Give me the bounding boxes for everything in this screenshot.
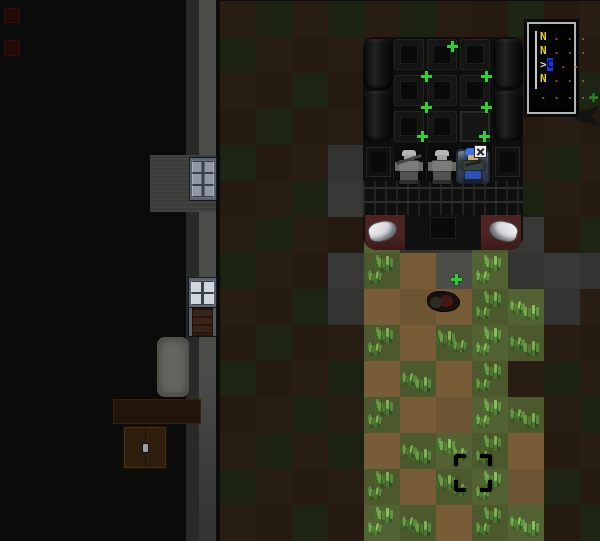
sprite-base — [464, 179, 482, 183]
minimap-dots: . . . — [553, 44, 586, 57]
minimap-row: N . . . — [540, 72, 572, 86]
sprite-legs — [433, 172, 451, 180]
reticle-corner — [480, 480, 492, 492]
cargo-plus-icon — [481, 102, 492, 113]
plus-bar — [479, 135, 490, 138]
sprite-armL — [428, 162, 432, 171]
minimap-row: N . . . — [540, 44, 572, 58]
cargo-plus-icon — [479, 131, 490, 142]
plus-bar — [481, 106, 492, 109]
minimap-letter: N — [540, 44, 553, 57]
minimap-row: >C . . — [540, 58, 572, 72]
cargo-plus-icon — [421, 102, 432, 113]
game-viewport[interactable]: N . . .N . . .>C . .N . . .. . . . . — [0, 0, 600, 541]
minimap-dots: . . — [553, 58, 580, 71]
character-npc-2[interactable] — [428, 149, 456, 185]
minimap-letter: N — [540, 72, 553, 85]
cargo-plus-icon — [451, 274, 462, 285]
minimap-row: . . . . . — [540, 89, 572, 103]
plus-bar — [417, 135, 428, 138]
cargo-plus-icon — [447, 41, 458, 52]
sprite-armR — [419, 162, 423, 171]
cargo-plus-icon — [421, 71, 432, 82]
minimap-letter: N — [540, 30, 553, 43]
minimap-rows: N . . .N . . .>C . .N . . .. . . . . — [540, 30, 572, 110]
minimap-cursor: > — [540, 58, 547, 71]
cargo-plus-icon — [481, 71, 492, 82]
sprite-legs — [465, 171, 481, 179]
character-npc-1[interactable] — [395, 149, 423, 185]
plus-bar — [421, 75, 432, 78]
minimap-panel[interactable]: N . . .N . . .>C . .N . . .. . . . . — [527, 22, 576, 114]
reticle-corner — [454, 454, 466, 466]
marker-layer — [0, 0, 600, 541]
plus-bar — [421, 106, 432, 109]
cargo-plus-icon — [417, 131, 428, 142]
minimap-scrollbar[interactable] — [535, 31, 537, 89]
sprite-armR — [482, 161, 486, 169]
sprite-armL — [460, 161, 464, 169]
target-reticle-icon — [454, 454, 492, 492]
minimap-dots-dim: . . . . . — [540, 89, 600, 102]
sprite-torso — [431, 160, 453, 172]
minimap-dots: . . . — [553, 72, 586, 85]
plus-bar — [447, 45, 458, 48]
vehicle-controls-icon[interactable] — [474, 145, 487, 158]
reticle-corner — [480, 454, 492, 466]
minimap-row: N . . . — [540, 30, 572, 44]
minimap-dots: . . . — [553, 30, 586, 43]
sprite-legs — [400, 172, 418, 180]
plus-bar — [451, 278, 462, 281]
plus-bar — [481, 75, 492, 78]
reticle-corner — [454, 480, 466, 492]
sprite-base — [432, 180, 452, 184]
sprite-base — [399, 180, 419, 184]
